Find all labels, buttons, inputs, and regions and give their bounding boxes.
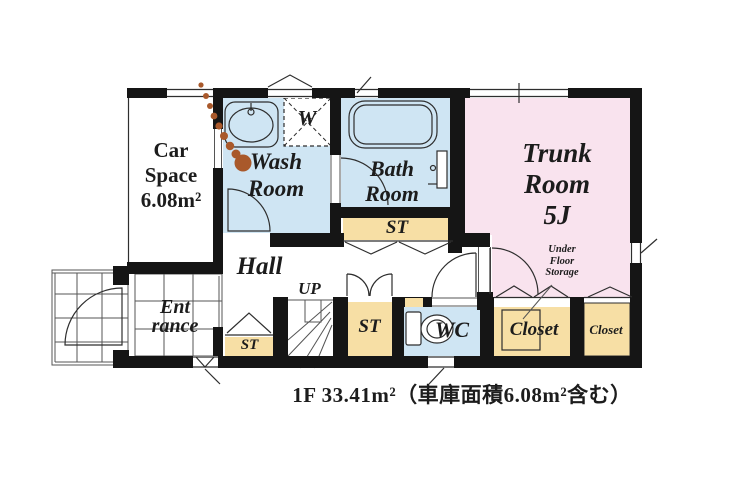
room-label-storage-hall: ST [347, 316, 392, 338]
floor-area-caption: 1F 33.41m²（車庫面積6.08m²含む） [262, 379, 662, 409]
storage-entrance-folding-door [225, 313, 273, 335]
room-label-car-space: CarSpace6.08m² [125, 138, 217, 213]
room-label-hall: Hall [227, 253, 292, 281]
room-label-storage-main: ST [372, 217, 422, 239]
floor-plan-drawing [0, 0, 735, 502]
room-label-bath-room: BathRoom [340, 156, 444, 206]
opening-wc-door [432, 297, 477, 307]
wc-shelf-top [405, 298, 423, 307]
room-label-closet-1: Closet [499, 319, 569, 341]
room-label-entrance: Entrance [137, 298, 213, 336]
room-label-washing-machine: W [292, 106, 322, 131]
wc-door [432, 253, 476, 297]
room-label-storage-entrance: ST [227, 337, 272, 354]
storage-hall-double-doors [347, 274, 392, 296]
room-label-up: UP [292, 279, 327, 299]
floor-plan: CarSpace6.08m² W WashRoom BathRoom Trunk… [0, 0, 735, 502]
window-wash [268, 75, 312, 98]
label-under-floor-storage: UnderFloorStorage [532, 244, 592, 279]
room-label-closet-2: Closet [581, 322, 631, 338]
window-bath [355, 77, 378, 98]
vent-entrance-bottom [193, 356, 220, 384]
room-label-wash-room: WashRoom [224, 148, 328, 202]
room-label-trunk-room: TrunkRoom5J [500, 138, 614, 231]
room-label-wc: WC [427, 317, 477, 343]
storage-main-folding-door [343, 241, 453, 254]
